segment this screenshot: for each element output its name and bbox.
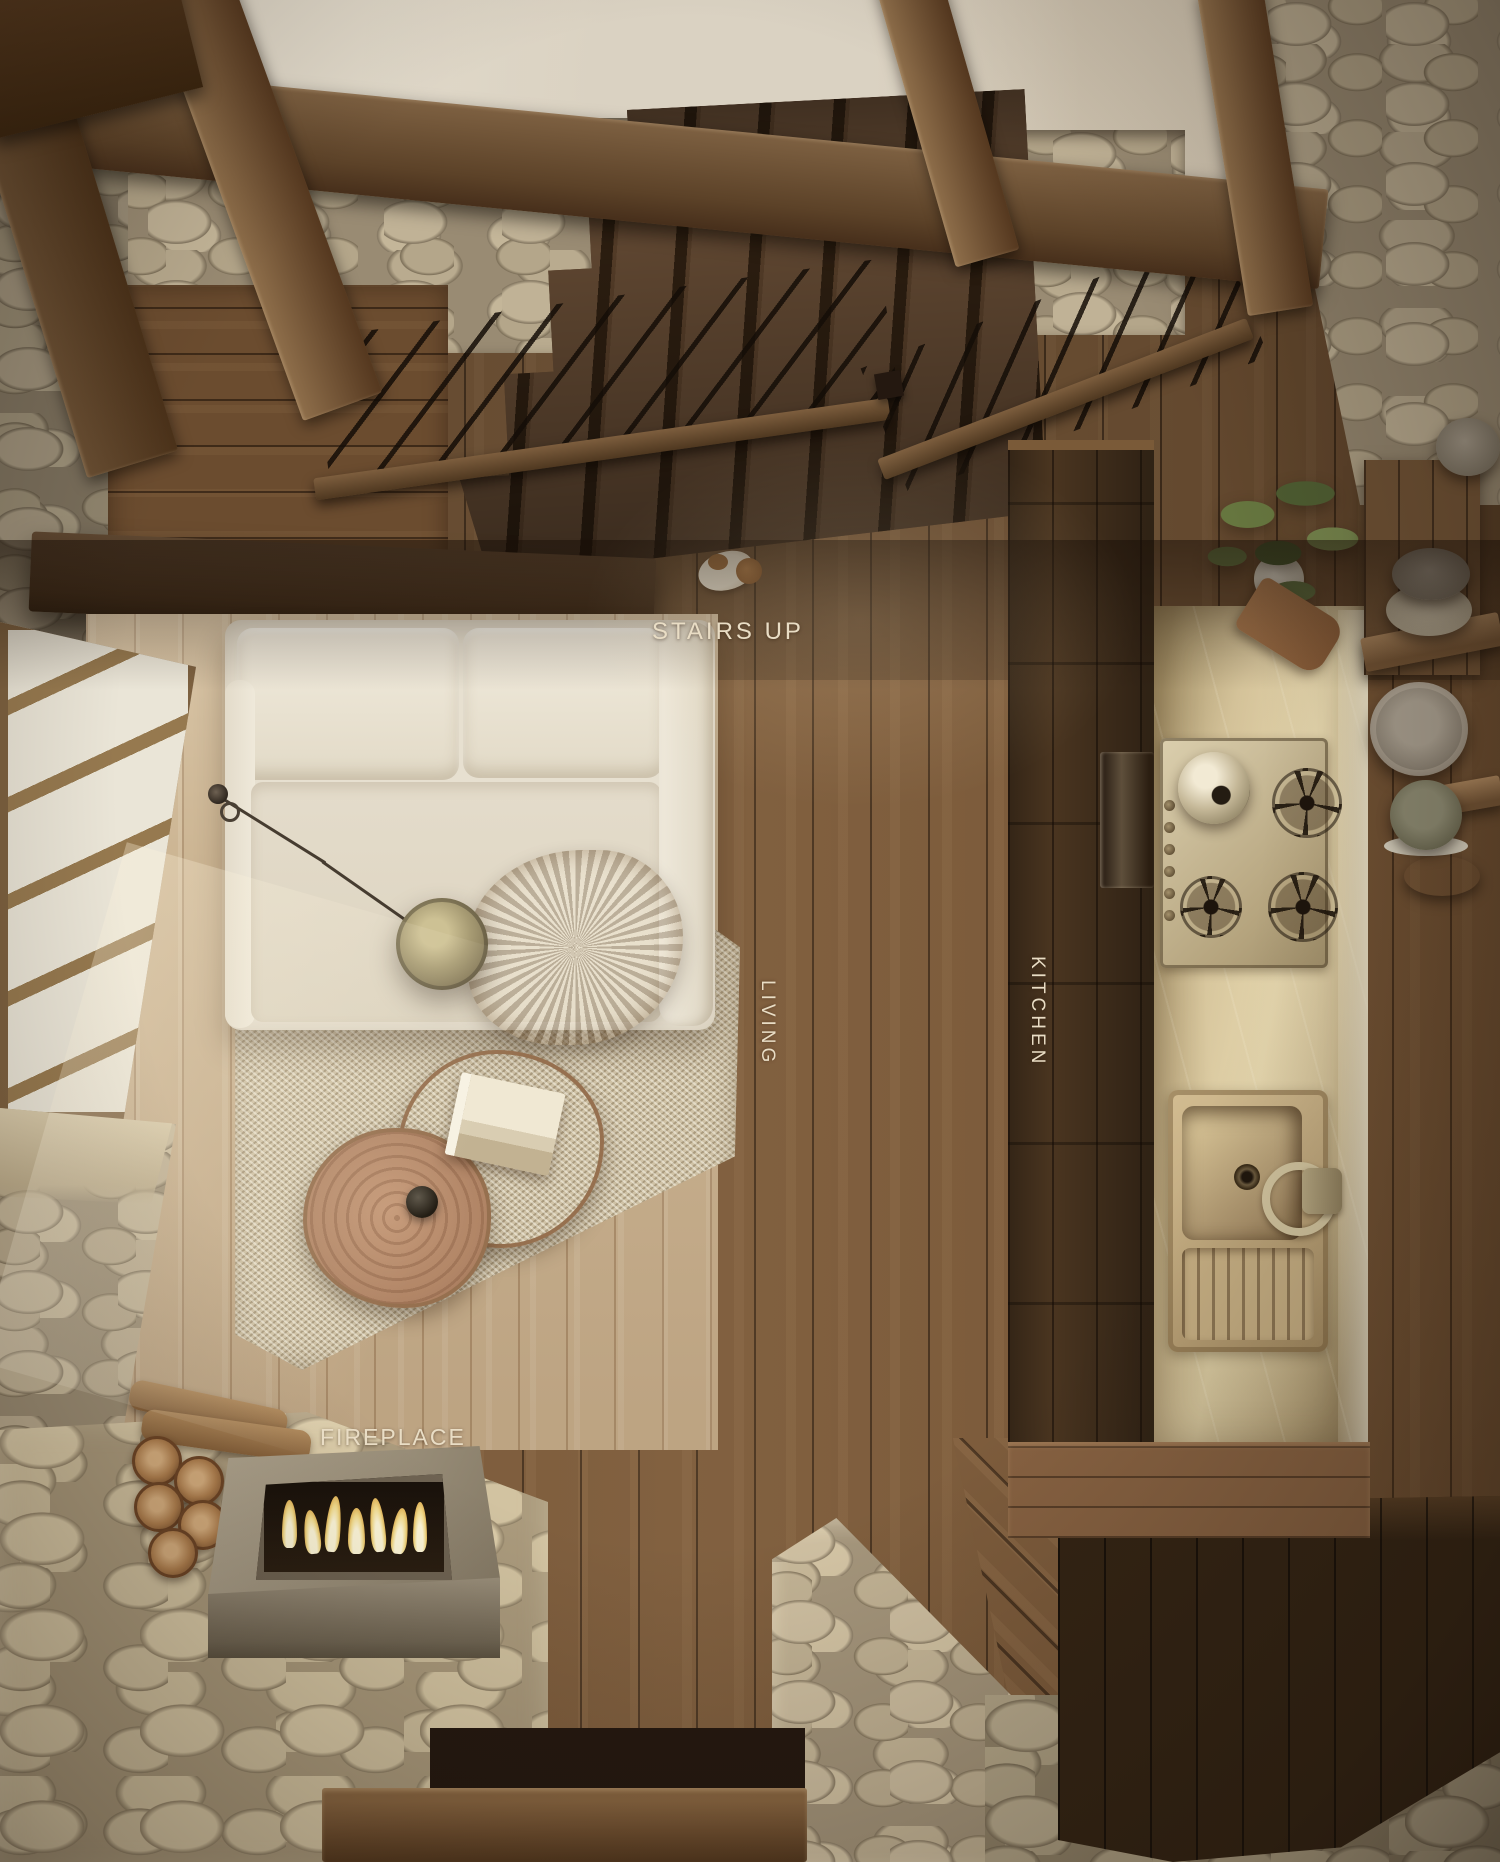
ceramic-bowl-large (1370, 682, 1468, 776)
sink-drainboard (1182, 1248, 1314, 1340)
stove-knob (1164, 844, 1175, 855)
faucet-base (1302, 1168, 1342, 1214)
lamp-wall-hook (208, 784, 228, 804)
railing-corner-post (874, 370, 904, 400)
cabin-interior-render: STAIRS UP LIVING KITCHEN FIREPLACE (0, 0, 1500, 1862)
stove-knob (1164, 888, 1175, 899)
label-fireplace: FIREPLACE (320, 1424, 466, 1451)
small-black-vase (406, 1186, 438, 1218)
flame (413, 1502, 427, 1552)
label-kitchen: KITCHEN (1026, 956, 1048, 1067)
sofa-back-cushion-left (237, 628, 459, 780)
ceramic-bowl-stack-top (1392, 548, 1470, 600)
stove-burner (1268, 872, 1338, 942)
stone-sill-top-face (0, 1108, 172, 1204)
flame (282, 1500, 297, 1548)
ceramic-bowl-dark (1404, 856, 1480, 896)
pendant-lamp-hub (430, 932, 456, 958)
stove-knob (1164, 910, 1175, 921)
stove-knob (1164, 800, 1175, 811)
kitchen-base-cabinet-front (1008, 1442, 1370, 1538)
sink-drain (1234, 1164, 1260, 1190)
dog-fur-patch (708, 554, 728, 570)
flame (368, 1497, 388, 1552)
stove-burner (1180, 876, 1242, 938)
ceramic-pot (1436, 418, 1500, 476)
cooking-pot (1178, 752, 1250, 824)
wooden-step-edge (322, 1788, 807, 1862)
lamp-hook-ring (220, 802, 240, 822)
flame (302, 1509, 323, 1554)
stove-burner (1272, 768, 1342, 838)
stove-knob (1164, 822, 1175, 833)
window-light-strip (1338, 610, 1368, 1450)
built-in-oven (1100, 752, 1154, 888)
flame (348, 1508, 365, 1554)
stove-knob (1164, 866, 1175, 877)
sofa-back-cushion-right (463, 628, 663, 778)
flame (324, 1495, 344, 1552)
label-living: LIVING (756, 980, 778, 1066)
ceramic-bowl-green (1390, 780, 1462, 850)
firewood-log-end (134, 1482, 184, 1532)
kitchen-tall-cabinets (1008, 440, 1154, 1465)
fire-pit-burner-opening (256, 1474, 452, 1580)
firewood-log-end (148, 1528, 198, 1578)
label-stairs-up: STAIRS UP (652, 618, 804, 646)
flame (390, 1507, 411, 1554)
dog-head (736, 558, 762, 584)
